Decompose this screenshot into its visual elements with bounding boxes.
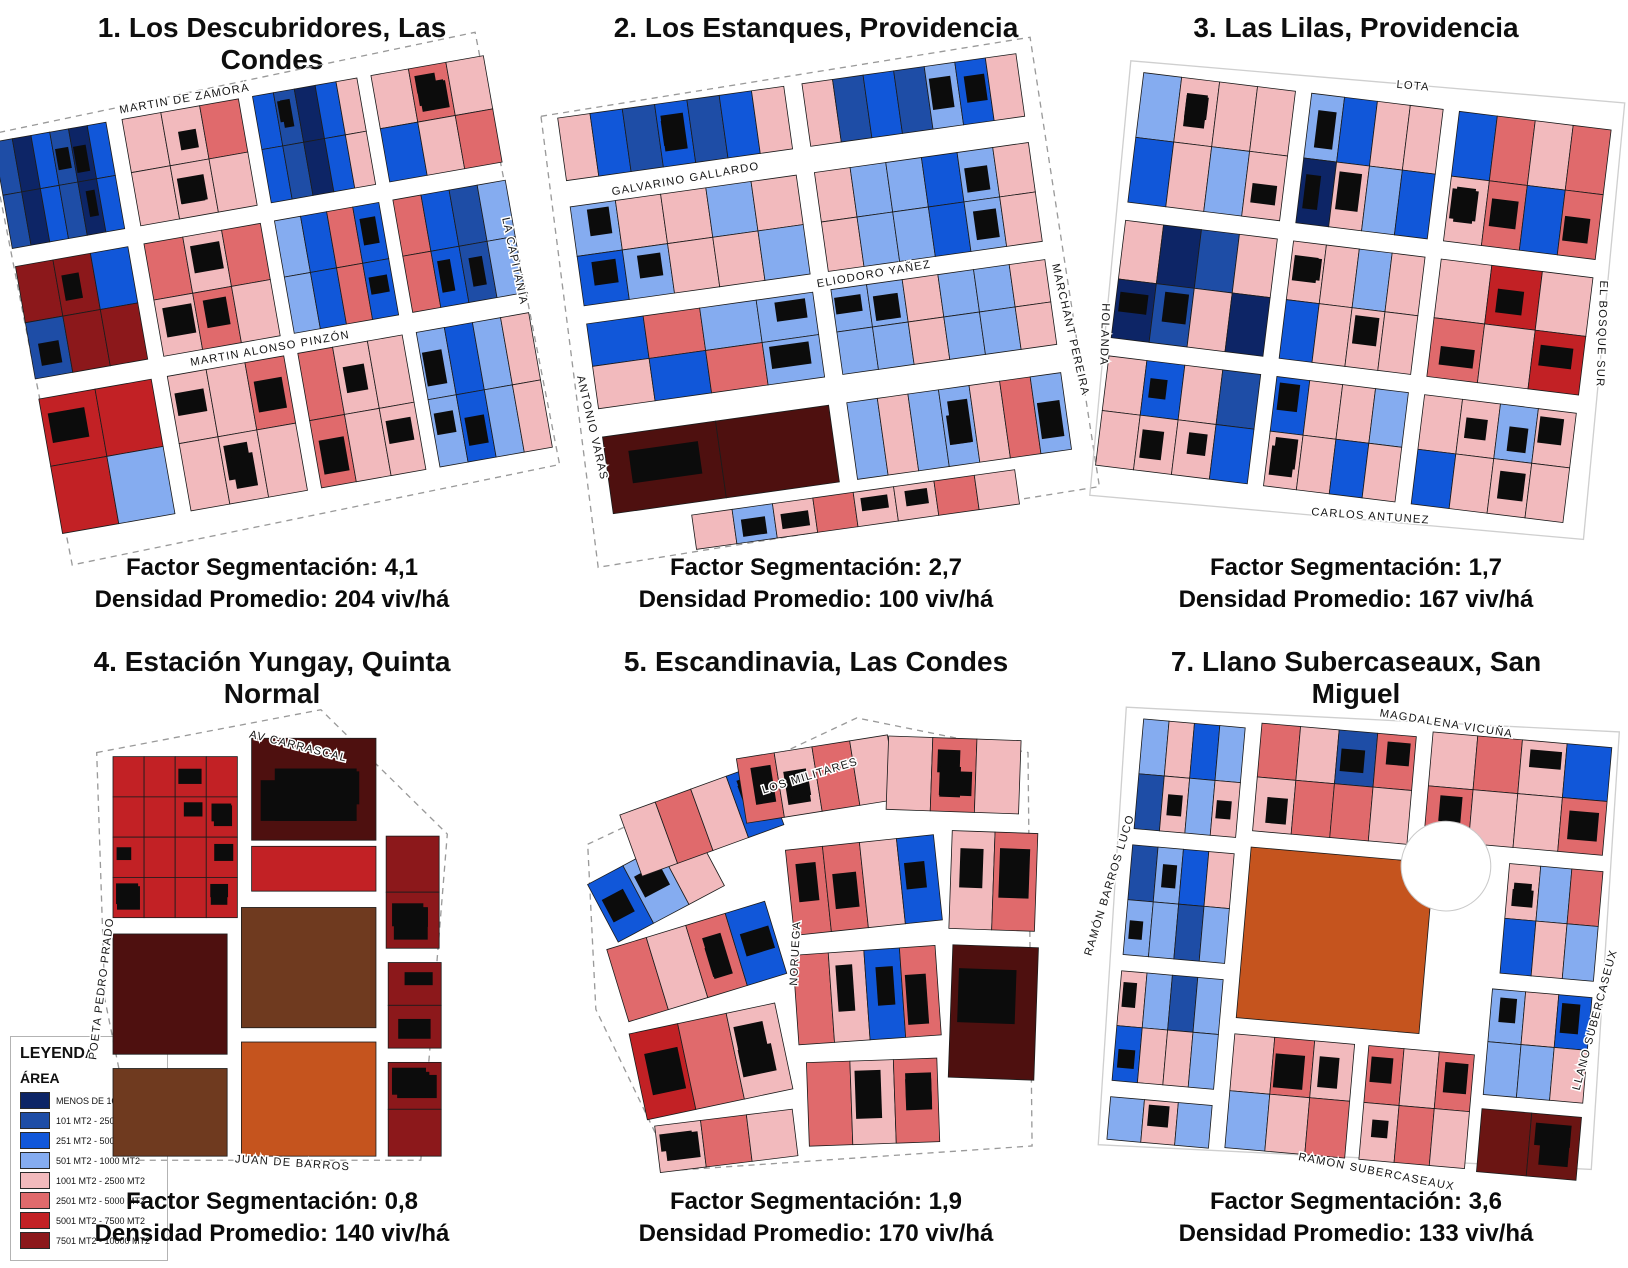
map-canvas: LOS MILITARESNORUEGA bbox=[551, 692, 1081, 1179]
neighborhood-map: LOS MILITARESNORUEGA bbox=[551, 692, 1081, 1179]
neighborhood-map: GALVARINO GALLARDOELIODORO YAÑEZANTONIO … bbox=[551, 58, 1081, 545]
factor-segmentacion: Factor Segmentación: 0,8 bbox=[8, 1186, 536, 1218]
factor-segmentacion: Factor Segmentación: 3,6 bbox=[1092, 1186, 1620, 1218]
panel-title: 5. Escandinavia, Las Condes bbox=[552, 646, 1080, 678]
neighborhood-map: MARTIN DE ZAMORALA CAPITANÍAMARTIN ALONS… bbox=[7, 58, 537, 545]
map-canvas: LOTAHOLANDAEL BOSQUE SURCARLOS ANTUNEZ bbox=[1091, 58, 1621, 545]
factor-segmentacion: Factor Segmentación: 1,9 bbox=[552, 1186, 1080, 1218]
neighborhood-map: LOTAHOLANDAEL BOSQUE SURCARLOS ANTUNEZ bbox=[1091, 58, 1621, 545]
densidad-promedio: Densidad Promedio: 140 viv/há bbox=[8, 1218, 536, 1250]
map-canvas: MARTIN DE ZAMORALA CAPITANÍAMARTIN ALONS… bbox=[7, 58, 537, 545]
factor-segmentacion: Factor Segmentación: 1,7 bbox=[1092, 552, 1620, 584]
factor-segmentacion: Factor Segmentación: 4,1 bbox=[8, 552, 536, 584]
street-label: CARLOS ANTUNEZ bbox=[1311, 506, 1430, 526]
densidad-promedio: Densidad Promedio: 170 viv/há bbox=[552, 1218, 1080, 1250]
street-label: POETA PEDRO PRADO bbox=[87, 917, 116, 1061]
panel-los-descubridores: 1. Los Descubridores, Las Condes MARTIN … bbox=[8, 6, 536, 628]
panel-stats: Factor Segmentación: 4,1 Densidad Promed… bbox=[8, 552, 536, 615]
panel-stats: Factor Segmentación: 1,9 Densidad Promed… bbox=[552, 1186, 1080, 1249]
panel-stats: Factor Segmentación: 0,8 Densidad Promed… bbox=[8, 1186, 536, 1249]
panel-stats: Factor Segmentación: 2,7 Densidad Promed… bbox=[552, 552, 1080, 615]
street-label: HOLANDA bbox=[1097, 303, 1111, 366]
map-canvas: AV CARRASCALPOETA PEDRO PRADOJUAN DE BAR… bbox=[7, 692, 537, 1179]
panel-llano-subercaseaux: 7. Llano Subercaseaux, San Miguel MAGDAL… bbox=[1092, 640, 1620, 1262]
panel-stats: Factor Segmentación: 3,6 Densidad Promed… bbox=[1092, 1186, 1620, 1249]
panel-los-estanques: 2. Los Estanques, Providencia GALVARINO … bbox=[552, 6, 1080, 628]
panel-title: 3. Las Lilas, Providencia bbox=[1092, 12, 1620, 44]
neighborhood-map: AV CARRASCALPOETA PEDRO PRADOJUAN DE BAR… bbox=[7, 692, 537, 1179]
panel-stats: Factor Segmentación: 1,7 Densidad Promed… bbox=[1092, 552, 1620, 615]
map-canvas: GALVARINO GALLARDOELIODORO YAÑEZANTONIO … bbox=[551, 58, 1081, 545]
map-canvas: MAGDALENA VICUÑARAMÓN BARROS LUCOLLANO S… bbox=[1091, 692, 1621, 1179]
panel-title: 2. Los Estanques, Providencia bbox=[552, 12, 1080, 44]
panel-estacion-yungay: 4. Estación Yungay, Quinta Normal AV CAR… bbox=[8, 640, 536, 1262]
factor-segmentacion: Factor Segmentación: 2,7 bbox=[552, 552, 1080, 584]
densidad-promedio: Densidad Promedio: 204 viv/há bbox=[8, 584, 536, 616]
densidad-promedio: Densidad Promedio: 133 viv/há bbox=[1092, 1218, 1620, 1250]
panel-escandinavia: 5. Escandinavia, Las Condes LOS MILITARE… bbox=[552, 640, 1080, 1262]
densidad-promedio: Densidad Promedio: 167 viv/há bbox=[1092, 584, 1620, 616]
densidad-promedio: Densidad Promedio: 100 viv/há bbox=[552, 584, 1080, 616]
panel-las-lilas: 3. Las Lilas, Providencia LOTAHOLANDAEL … bbox=[1092, 6, 1620, 628]
neighborhood-map: MAGDALENA VICUÑARAMÓN BARROS LUCOLLANO S… bbox=[1091, 692, 1621, 1179]
street-label: LOTA bbox=[1396, 79, 1430, 94]
street-label: EL BOSQUE SUR bbox=[1594, 280, 1610, 387]
